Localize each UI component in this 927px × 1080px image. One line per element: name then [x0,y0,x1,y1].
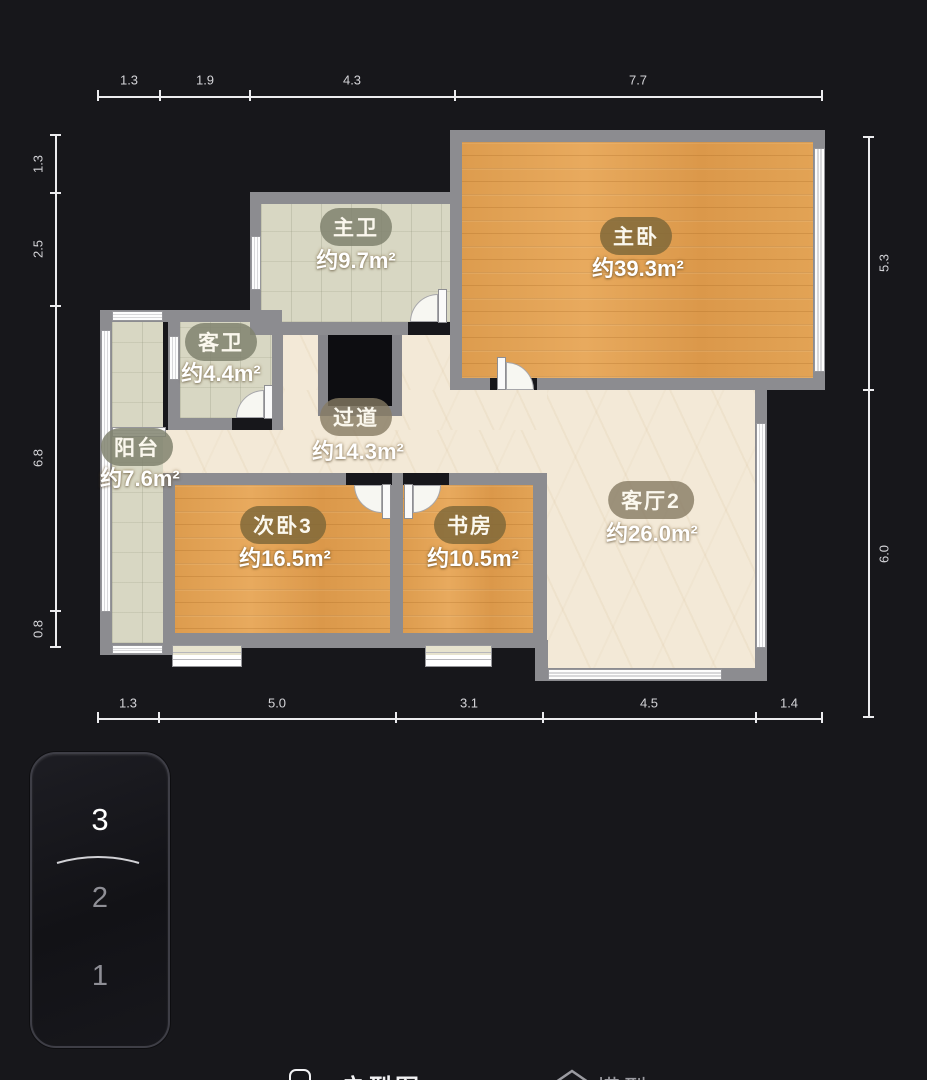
room-label-master-bath: 主卫 [320,208,392,246]
wall [272,322,283,430]
wall [533,473,547,648]
house-icon [553,1069,591,1080]
window [251,236,261,290]
room-label-study: 书房 [434,506,506,544]
wall [449,473,546,485]
wall [168,418,232,430]
wall [535,640,548,668]
wall [390,485,403,633]
door-leaf [404,484,413,519]
dim-top-3: 4.3 [343,73,361,88]
window [112,311,163,321]
dim-left-4: 0.8 [31,620,46,638]
room-label-master-bed: 主卧 [600,217,672,255]
wall [450,142,462,390]
dim-left-1: 1.3 [31,155,46,173]
wall [450,378,490,390]
wall [250,192,450,204]
wall [537,378,825,390]
room-area-living2: 约26.0m² [606,516,698,548]
bay-window [425,645,492,667]
room-area-hallway: 约14.3m² [312,434,404,466]
dim-bottom-5: 1.4 [780,696,798,711]
dim-bottom-1: 1.3 [119,696,137,711]
dim-left-2: 2.5 [31,240,46,258]
dim-top-2: 1.9 [196,73,214,88]
bay-window [172,645,242,667]
dim-top-4: 7.7 [629,73,647,88]
window [169,336,179,380]
room-label-hallway: 过道 [320,398,392,436]
dim-top-1: 1.3 [120,73,138,88]
dim-left-3: 6.8 [31,449,46,467]
room-area-guest-bath: 约4.4m² [181,356,260,388]
wall [163,473,175,655]
window [756,423,766,648]
window-sill [112,645,163,654]
door-leaf [382,484,391,519]
room-area-study: 约10.5m² [427,541,519,573]
floor-selector[interactable]: 3 2 1 [30,752,170,1048]
tab-floor-plan[interactable]: 户型图 [341,1068,422,1080]
room-area-master-bed: 约39.3m² [592,251,684,283]
floor-button-2[interactable]: 2 [32,882,168,915]
door-leaf [497,357,506,390]
window [814,148,825,372]
room-area-bed3: 约16.5m² [239,541,331,573]
wall [175,473,346,485]
dim-bottom-3: 3.1 [460,696,478,711]
selected-floor-divider [53,850,143,866]
wall [392,473,403,485]
room-label-living2: 客厅2 [608,481,694,519]
wall [274,418,283,430]
wall [450,130,825,142]
floor-plan-icon [289,1069,311,1080]
dim-bottom-4: 4.5 [640,696,658,711]
dim-bottom-2: 5.0 [268,696,286,711]
room-area-master-bath: 约9.7m² [316,243,395,275]
room-area-balcony: 约7.6m² [100,461,179,493]
floor-button-3[interactable]: 3 [32,802,168,838]
door-leaf [264,385,273,419]
dim-right-1: 5.3 [877,254,892,272]
room-label-bed3: 次卧3 [240,506,326,544]
stair-shaft [328,332,392,406]
dim-right-2: 6.0 [877,545,892,563]
window [548,669,722,680]
tab-model[interactable]: 模型 [596,1069,650,1080]
door-leaf [438,289,447,323]
floor-button-1[interactable]: 1 [32,960,168,993]
floor-plan-screen: 1.3 1.9 4.3 7.7 1.3 5.0 3.1 4.5 1.4 1.3 … [0,0,927,1080]
